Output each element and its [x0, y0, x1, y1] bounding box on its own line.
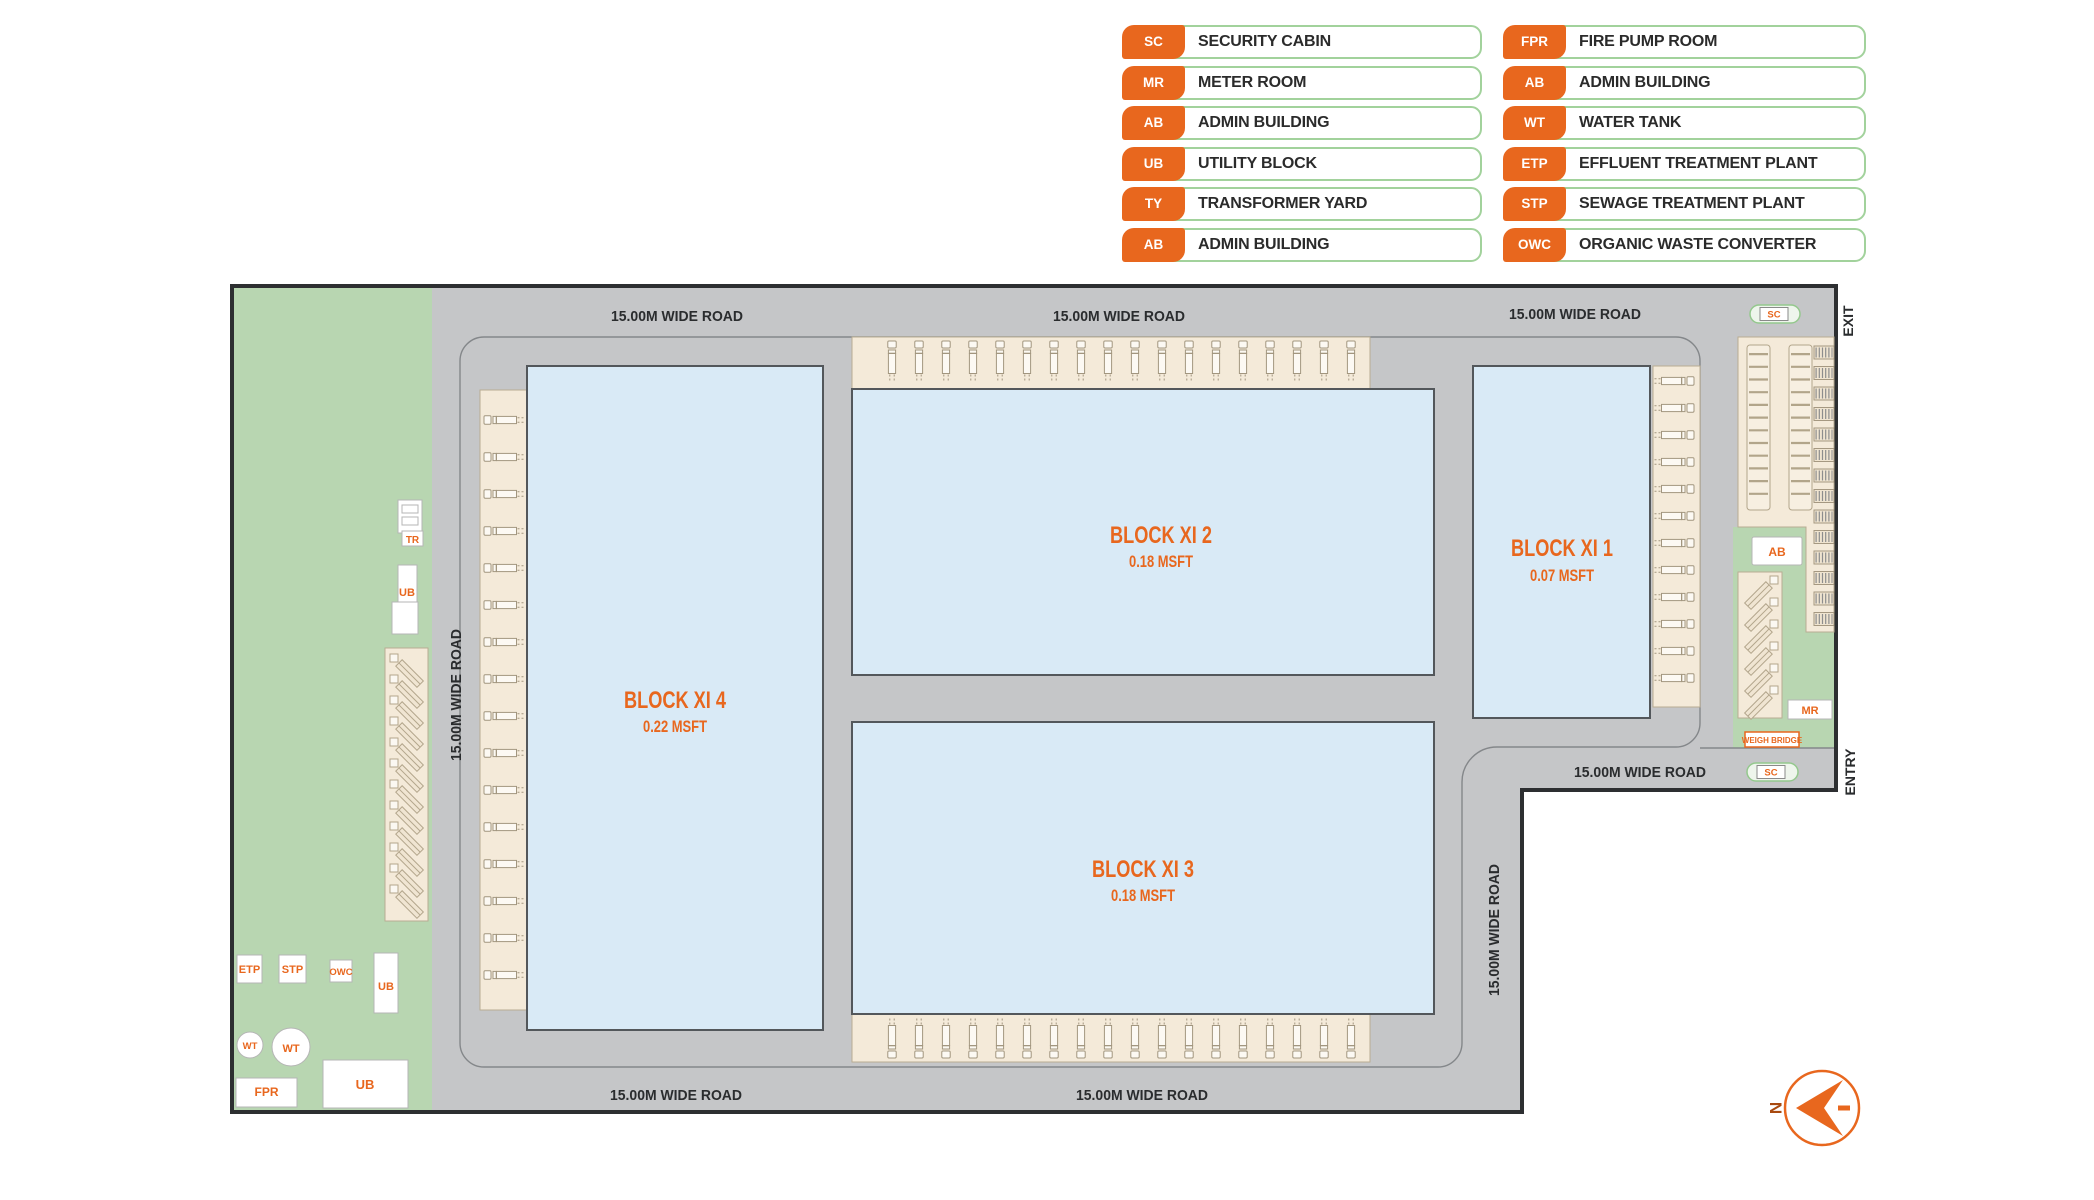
block-xi-3-area: 0.18 MSFT — [1111, 886, 1175, 905]
wt-small-label: WT — [243, 1041, 258, 1052]
block-xi-4-area: 0.22 MSFT — [643, 717, 707, 736]
legend-item-label: ADMIN BUILDING — [1579, 66, 1710, 100]
road-label-left-vertical: 15.00M WIDE ROAD — [448, 629, 465, 761]
etp-label: ETP — [239, 964, 260, 976]
north-label: N — [1767, 1102, 1786, 1114]
legend-item-code: AB — [1122, 228, 1185, 262]
legend-item-ab-3: ADMIN BUILDING AB — [1503, 66, 1866, 100]
road-label-bottom-left: 15.00M WIDE ROAD — [610, 1087, 742, 1104]
sc-entry-label: SC — [1764, 768, 1777, 779]
legend-item-fpr: FIRE PUMP ROOM FPR — [1503, 25, 1866, 59]
security-cabin-exit: SC — [1750, 305, 1800, 323]
block-xi-1-area: 0.07 MSFT — [1530, 566, 1594, 585]
legend-item-label: WATER TANK — [1579, 106, 1681, 140]
ub-wide-label: UB — [356, 1077, 375, 1092]
security-cabin-entry: SC — [1747, 763, 1798, 781]
legend-item-code: FPR — [1503, 25, 1566, 59]
dock-strip-right — [1653, 366, 1700, 707]
legend-item-code: TY — [1122, 187, 1185, 221]
legend-item-code: ETP — [1503, 147, 1566, 181]
wt-large-label: WT — [282, 1043, 299, 1055]
legend-item-code: SC — [1122, 25, 1185, 59]
legend-item-etp: EFFLUENT TREATMENT PLANT ETP — [1503, 147, 1866, 181]
legend-item-ab-2: ADMIN BUILDING AB — [1122, 228, 1482, 262]
block-xi-3-name: BLOCK XI 3 — [1092, 856, 1194, 883]
weigh-bridge-label: WEIGH BRIDGE — [1742, 736, 1803, 745]
block-xi-2-area: 0.18 MSFT — [1129, 552, 1193, 571]
legend-item-label: METER ROOM — [1198, 66, 1306, 100]
owc-label: OWC — [329, 967, 352, 978]
exit-label: EXIT — [1840, 305, 1856, 337]
ab-label: AB — [1768, 545, 1786, 559]
ub-label: UB — [399, 587, 415, 599]
site-plan-page: BLOCK XI 4 0.22 MSFT BLOCK XI 2 0.18 MSF… — [0, 0, 2094, 1200]
legend-item-wt: WATER TANK WT — [1503, 106, 1866, 140]
ub-tall-label: UB — [378, 981, 394, 993]
sc-exit-label: SC — [1767, 310, 1780, 321]
road-label-top-mid: 15.00M WIDE ROAD — [1053, 308, 1185, 325]
transformer-icon: TR — [398, 500, 423, 546]
legend-item-mr: METER ROOM MR — [1122, 66, 1482, 100]
legend-item-code: MR — [1122, 66, 1185, 100]
entry-label: ENTRY — [1842, 748, 1858, 796]
dock-strip-left — [480, 390, 527, 1010]
legend-item-code: UB — [1122, 147, 1185, 181]
legend-item-code: STP — [1503, 187, 1566, 221]
legend-item-code: WT — [1503, 106, 1566, 140]
road-label-top-right: 15.00M WIDE ROAD — [1509, 306, 1641, 323]
legend-item-label: TRANSFORMER YARD — [1198, 187, 1367, 221]
legend-item-ub: UTILITY BLOCK UB — [1122, 147, 1482, 181]
legend-item-label: EFFLUENT TREATMENT PLANT — [1579, 147, 1817, 181]
legend-item-code: AB — [1503, 66, 1566, 100]
legend-item-label: ADMIN BUILDING — [1198, 228, 1329, 262]
block-xi-2-name: BLOCK XI 2 — [1110, 522, 1212, 549]
road-label-bottom-mid: 15.00M WIDE ROAD — [1076, 1087, 1208, 1104]
mr-label: MR — [1801, 705, 1818, 717]
north-arrow: N — [1767, 1071, 1860, 1145]
legend-item-label: SECURITY CABIN — [1198, 25, 1331, 59]
road-label-entry: 15.00M WIDE ROAD — [1574, 764, 1706, 781]
road-label-right-vertical: 15.00M WIDE ROAD — [1486, 864, 1503, 996]
block-xi-4-name: BLOCK XI 4 — [624, 687, 726, 714]
block-xi-1-name: BLOCK XI 1 — [1511, 535, 1613, 562]
stp-label: STP — [282, 964, 303, 976]
legend-item-label: ORGANIC WASTE CONVERTER — [1579, 228, 1816, 262]
legend-item-ab-1: ADMIN BUILDING AB — [1122, 106, 1482, 140]
legend-item-ty: TRANSFORMER YARD TY — [1122, 187, 1482, 221]
legend-item-sc: SECURITY CABIN SC — [1122, 25, 1482, 59]
legend-item-label: UTILITY BLOCK — [1198, 147, 1317, 181]
legend-item-code: AB — [1122, 106, 1185, 140]
legend-item-label: FIRE PUMP ROOM — [1579, 25, 1717, 59]
road-label-top-left: 15.00M WIDE ROAD — [611, 308, 743, 325]
legend-item-stp: SEWAGE TREATMENT PLANT STP — [1503, 187, 1866, 221]
legend-item-owc: ORGANIC WASTE CONVERTER OWC — [1503, 228, 1866, 262]
legend-item-code: OWC — [1503, 228, 1566, 262]
legend-item-label: SEWAGE TREATMENT PLANT — [1579, 187, 1805, 221]
legend-item-label: ADMIN BUILDING — [1198, 106, 1329, 140]
tr-label: TR — [406, 535, 420, 546]
fpr-label: FPR — [255, 1085, 279, 1099]
